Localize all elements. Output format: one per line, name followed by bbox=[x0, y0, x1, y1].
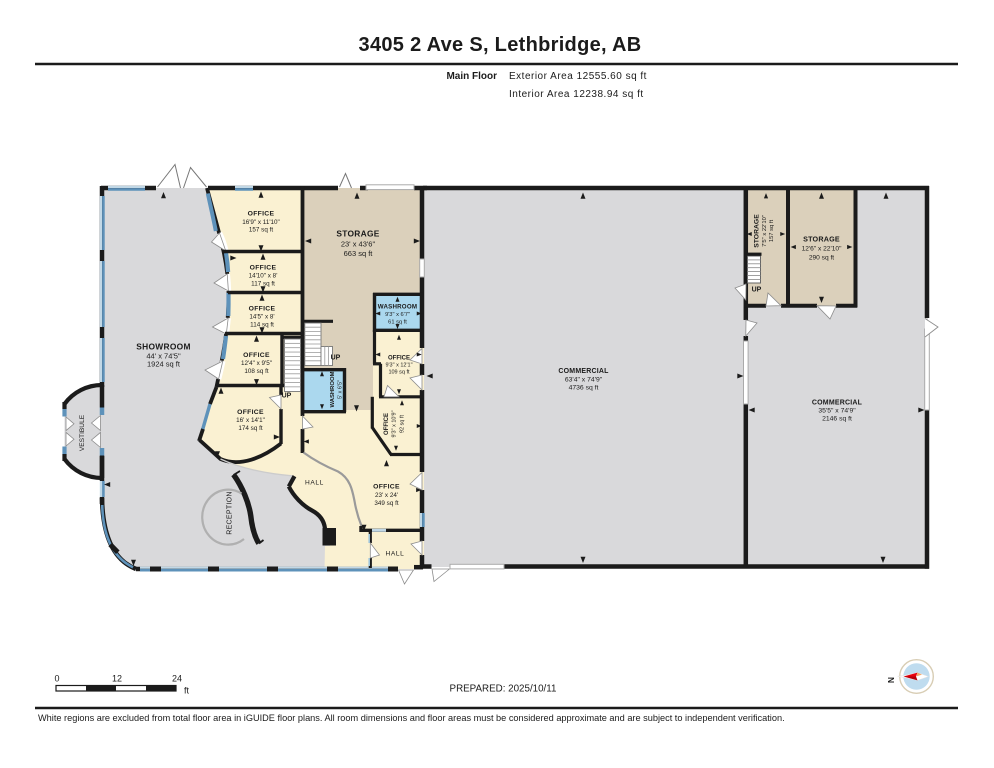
svg-text:24: 24 bbox=[172, 674, 182, 684]
svg-text:174 sq ft: 174 sq ft bbox=[238, 425, 262, 432]
svg-text:WASHROOM: WASHROOM bbox=[378, 304, 417, 311]
svg-text:4736 sq ft: 4736 sq ft bbox=[569, 385, 599, 392]
svg-text:STORAGE: STORAGE bbox=[754, 214, 761, 248]
svg-text:OFFICE: OFFICE bbox=[388, 356, 410, 362]
svg-text:Main Floor: Main Floor bbox=[446, 71, 497, 82]
svg-text:23' x 43'6": 23' x 43'6" bbox=[341, 239, 376, 248]
svg-text:Interior Area 12238.94 sq ft: Interior Area 12238.94 sq ft bbox=[509, 89, 644, 100]
svg-text:9'3" x 10'9": 9'3" x 10'9" bbox=[392, 410, 398, 437]
svg-text:12'4" x 9'5": 12'4" x 9'5" bbox=[241, 360, 272, 367]
svg-text:HALL: HALL bbox=[386, 551, 405, 558]
svg-text:SHOWROOM: SHOWROOM bbox=[136, 342, 191, 352]
svg-text:COMMERCIAL: COMMERCIAL bbox=[812, 400, 863, 407]
svg-text:117 sq ft: 117 sq ft bbox=[251, 280, 275, 287]
svg-text:663 sq ft: 663 sq ft bbox=[344, 249, 374, 258]
svg-text:VESTIBULE: VESTIBULE bbox=[79, 414, 86, 451]
svg-text:N: N bbox=[886, 677, 896, 683]
svg-text:14'5" x 8': 14'5" x 8' bbox=[249, 314, 274, 321]
svg-text:63'4" x 74'9": 63'4" x 74'9" bbox=[565, 377, 603, 384]
svg-text:14'10" x 8': 14'10" x 8' bbox=[249, 273, 278, 280]
svg-text:9'3" x 12'1": 9'3" x 12'1" bbox=[385, 363, 412, 369]
svg-text:157 sq ft: 157 sq ft bbox=[769, 219, 775, 242]
svg-text:16'9" x 11'10": 16'9" x 11'10" bbox=[242, 219, 280, 226]
svg-text:16' x 14'1": 16' x 14'1" bbox=[236, 417, 265, 424]
svg-text:ft: ft bbox=[184, 686, 190, 696]
svg-text:UP: UP bbox=[282, 393, 292, 400]
svg-text:OFFICE: OFFICE bbox=[243, 352, 270, 359]
svg-text:5' x 6'5": 5' x 6'5" bbox=[338, 380, 344, 399]
svg-text:2146 sq ft: 2146 sq ft bbox=[822, 416, 852, 423]
svg-text:12: 12 bbox=[112, 674, 122, 684]
svg-text:157 sq ft: 157 sq ft bbox=[249, 227, 273, 234]
svg-text:OFFICE: OFFICE bbox=[384, 413, 390, 435]
svg-text:UP: UP bbox=[331, 355, 341, 362]
svg-text:23' x 24': 23' x 24' bbox=[375, 492, 398, 499]
svg-text:109 sq ft: 109 sq ft bbox=[388, 370, 410, 376]
svg-text:White regions are excluded fro: White regions are excluded from total fl… bbox=[38, 713, 785, 723]
svg-text:114 sq ft: 114 sq ft bbox=[250, 321, 274, 328]
svg-text:108 sq ft: 108 sq ft bbox=[244, 368, 268, 375]
svg-text:3405 2 Ave S, Lethbridge, AB: 3405 2 Ave S, Lethbridge, AB bbox=[359, 34, 642, 56]
svg-text:HALL: HALL bbox=[305, 480, 324, 487]
svg-text:0: 0 bbox=[54, 674, 59, 684]
svg-text:COMMERCIAL: COMMERCIAL bbox=[558, 368, 609, 375]
svg-text:349 sq ft: 349 sq ft bbox=[374, 500, 398, 507]
svg-text:12'6" x 22'10": 12'6" x 22'10" bbox=[802, 246, 842, 253]
svg-text:STORAGE: STORAGE bbox=[803, 235, 840, 244]
svg-text:PREPARED: 2025/10/11: PREPARED: 2025/10/11 bbox=[450, 684, 557, 695]
svg-text:Exterior Area 12555.60 sq ft: Exterior Area 12555.60 sq ft bbox=[509, 71, 647, 82]
svg-text:290 sq ft: 290 sq ft bbox=[809, 255, 834, 262]
svg-text:1924 sq ft: 1924 sq ft bbox=[147, 360, 181, 369]
svg-text:7'5" x 22'10": 7'5" x 22'10" bbox=[762, 215, 768, 247]
svg-text:WASHROOM: WASHROOM bbox=[330, 371, 336, 407]
svg-text:92 sq ft: 92 sq ft bbox=[399, 415, 405, 434]
svg-text:9'3" x 6'7": 9'3" x 6'7" bbox=[385, 312, 410, 318]
svg-text:UP: UP bbox=[752, 287, 762, 294]
svg-text:OFFICE: OFFICE bbox=[373, 484, 400, 491]
svg-text:OFFICE: OFFICE bbox=[249, 306, 276, 313]
svg-text:OFFICE: OFFICE bbox=[237, 409, 264, 416]
svg-text:STORAGE: STORAGE bbox=[336, 229, 379, 239]
svg-text:35'5" x 74'9": 35'5" x 74'9" bbox=[818, 408, 856, 415]
svg-text:OFFICE: OFFICE bbox=[250, 265, 277, 272]
svg-text:RECEPTION: RECEPTION bbox=[227, 491, 234, 535]
svg-text:OFFICE: OFFICE bbox=[248, 211, 275, 218]
